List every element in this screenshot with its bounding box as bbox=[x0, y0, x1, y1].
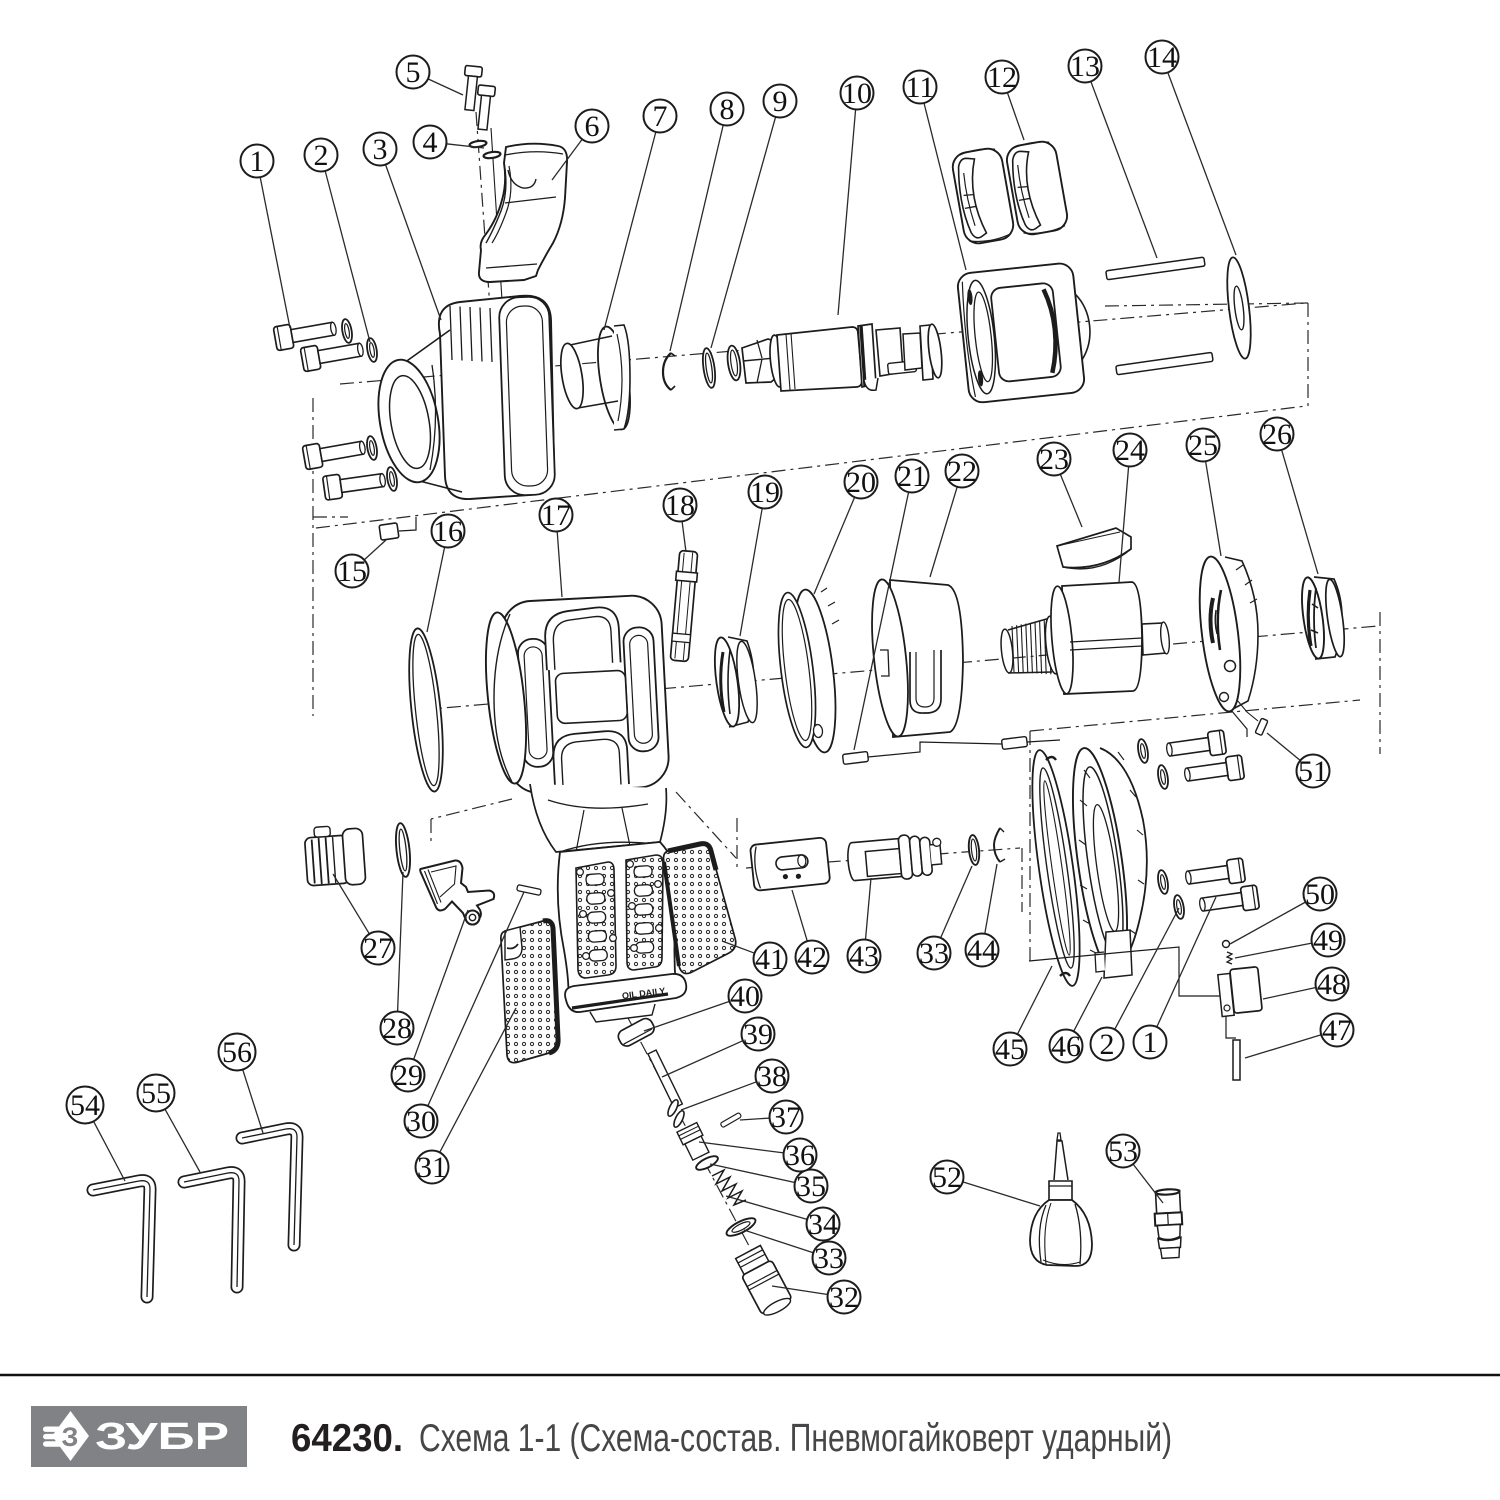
svg-text:34: 34 bbox=[808, 1208, 838, 1241]
svg-text:33: 33 bbox=[814, 1242, 844, 1275]
svg-text:30: 30 bbox=[406, 1105, 436, 1138]
svg-text:12: 12 bbox=[987, 61, 1017, 94]
svg-text:24: 24 bbox=[1115, 434, 1145, 467]
svg-text:7: 7 bbox=[653, 100, 668, 133]
svg-text:17: 17 bbox=[541, 499, 571, 532]
svg-text:9: 9 bbox=[773, 85, 788, 118]
svg-text:2: 2 bbox=[314, 139, 329, 172]
svg-text:36: 36 bbox=[785, 1139, 815, 1172]
svg-text:2: 2 bbox=[1100, 1028, 1115, 1061]
svg-text:46: 46 bbox=[1051, 1030, 1081, 1063]
svg-text:18: 18 bbox=[665, 489, 695, 522]
svg-text:26: 26 bbox=[1262, 418, 1292, 451]
svg-text:1: 1 bbox=[250, 145, 265, 178]
svg-text:21: 21 bbox=[897, 460, 927, 493]
svg-text:39: 39 bbox=[743, 1018, 773, 1051]
svg-text:27: 27 bbox=[363, 932, 393, 965]
svg-text:37: 37 bbox=[771, 1101, 801, 1134]
svg-text:11: 11 bbox=[906, 71, 935, 104]
svg-text:50: 50 bbox=[1305, 878, 1335, 911]
svg-text:40: 40 bbox=[730, 980, 760, 1013]
svg-text:49: 49 bbox=[1313, 924, 1343, 957]
svg-text:56: 56 bbox=[222, 1036, 252, 1069]
svg-text:64230.: 64230. bbox=[291, 1417, 403, 1460]
svg-text:53: 53 bbox=[1108, 1135, 1138, 1168]
svg-text:41: 41 bbox=[755, 943, 785, 976]
svg-text:Схема 1-1 (Схема-состав. Пневм: Схема 1-1 (Схема-состав. Пневмогайковерт… bbox=[419, 1417, 1172, 1460]
svg-text:10: 10 bbox=[842, 77, 872, 110]
svg-text:20: 20 bbox=[846, 466, 876, 499]
svg-text:48: 48 bbox=[1317, 968, 1347, 1001]
svg-text:1: 1 bbox=[1143, 1026, 1158, 1059]
svg-text:5: 5 bbox=[406, 56, 421, 89]
svg-text:45: 45 bbox=[995, 1033, 1025, 1066]
svg-text:14: 14 bbox=[1147, 41, 1177, 74]
svg-text:3: 3 bbox=[373, 133, 388, 166]
svg-text:28: 28 bbox=[382, 1012, 412, 1045]
svg-text:32: 32 bbox=[829, 1281, 859, 1314]
svg-text:52: 52 bbox=[932, 1161, 962, 1194]
svg-text:ЗУБР: ЗУБР bbox=[95, 1416, 229, 1458]
svg-text:43: 43 bbox=[849, 940, 879, 973]
svg-text:16: 16 bbox=[433, 515, 463, 548]
svg-text:31: 31 bbox=[417, 1151, 447, 1184]
svg-text:13: 13 bbox=[1070, 50, 1100, 83]
svg-text:22: 22 bbox=[947, 455, 977, 488]
svg-text:38: 38 bbox=[757, 1060, 787, 1093]
svg-text:44: 44 bbox=[967, 934, 997, 967]
svg-text:42: 42 bbox=[797, 941, 827, 974]
svg-text:35: 35 bbox=[796, 1170, 826, 1203]
svg-text:8: 8 bbox=[720, 93, 735, 126]
svg-text:47: 47 bbox=[1322, 1014, 1352, 1047]
svg-text:6: 6 bbox=[585, 110, 600, 143]
svg-text:19: 19 bbox=[750, 476, 780, 509]
svg-text:33: 33 bbox=[919, 937, 949, 970]
svg-text:25: 25 bbox=[1188, 429, 1218, 462]
svg-text:54: 54 bbox=[70, 1089, 100, 1122]
svg-text:55: 55 bbox=[141, 1077, 171, 1110]
svg-text:15: 15 bbox=[337, 555, 367, 588]
svg-text:29: 29 bbox=[393, 1059, 423, 1092]
svg-text:23: 23 bbox=[1039, 443, 1069, 476]
svg-text:51: 51 bbox=[1298, 755, 1328, 788]
svg-text:З: З bbox=[62, 1422, 79, 1452]
svg-text:4: 4 bbox=[423, 126, 438, 159]
